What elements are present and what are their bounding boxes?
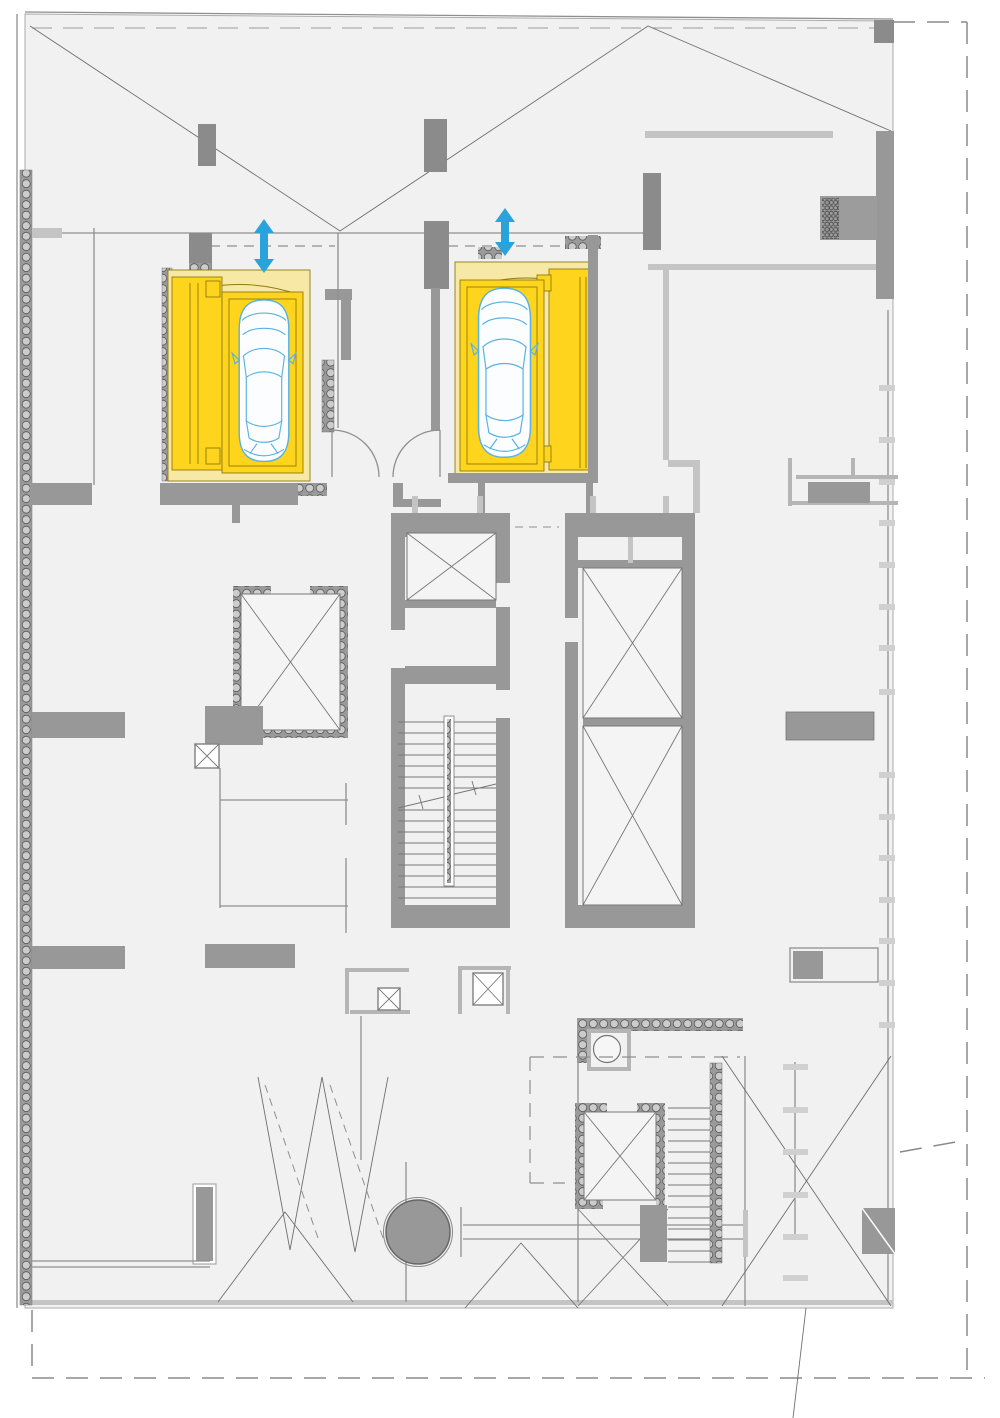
right-wall-block bbox=[786, 712, 874, 740]
top-room-divider bbox=[628, 537, 633, 563]
car-top-view-left bbox=[232, 300, 296, 461]
stair-insulated-wall bbox=[710, 1063, 722, 1263]
building-shell bbox=[17, 12, 893, 1308]
partition-wall bbox=[663, 270, 669, 460]
bottom-wall bbox=[25, 1300, 893, 1305]
elevator-shaft-lower bbox=[583, 726, 682, 905]
room-bottom-wall bbox=[648, 264, 876, 270]
wall-box-fill bbox=[196, 1187, 213, 1261]
equipment-vent-dots bbox=[822, 198, 839, 239]
floor-plan-drawing bbox=[0, 0, 1000, 1418]
floor-plan-page bbox=[0, 0, 1000, 1418]
door-gap bbox=[391, 630, 405, 668]
dark-wall-block bbox=[640, 1205, 667, 1262]
door-gap bbox=[496, 690, 510, 718]
wall-right-of-lift bbox=[588, 235, 598, 478]
elevator-shaft-bottom bbox=[584, 1112, 656, 1200]
niche-block bbox=[793, 951, 823, 979]
building-outline bbox=[25, 14, 893, 1308]
track-end-bracket bbox=[743, 1210, 748, 1257]
elevator-shaft-core-left bbox=[407, 533, 496, 600]
door-gap bbox=[565, 618, 578, 642]
niche-block bbox=[808, 482, 870, 503]
elevator-shaft-upper bbox=[583, 568, 682, 718]
lift-bracket-top bbox=[206, 281, 220, 297]
boundary-diagonal-line bbox=[793, 1308, 806, 1418]
wall-left-of-lift bbox=[431, 288, 440, 431]
column-box-2 bbox=[378, 988, 400, 1010]
door-gap bbox=[496, 583, 510, 607]
left-insulated-wall bbox=[20, 170, 32, 1305]
room-right-wall bbox=[876, 131, 894, 299]
column-box-3 bbox=[473, 973, 503, 1005]
insulation-right-of-lift bbox=[322, 360, 334, 432]
column-box-1 bbox=[195, 744, 219, 768]
vent-duct-circle bbox=[594, 1036, 621, 1063]
stair-handrail-hatch bbox=[447, 719, 451, 883]
round-column bbox=[386, 1200, 450, 1264]
lift-machinery bbox=[172, 277, 222, 470]
left-wall-stub bbox=[32, 228, 62, 238]
car-top-view-right bbox=[471, 288, 538, 457]
room-top-wall bbox=[645, 131, 833, 138]
lift-bracket-bottom bbox=[206, 448, 220, 464]
